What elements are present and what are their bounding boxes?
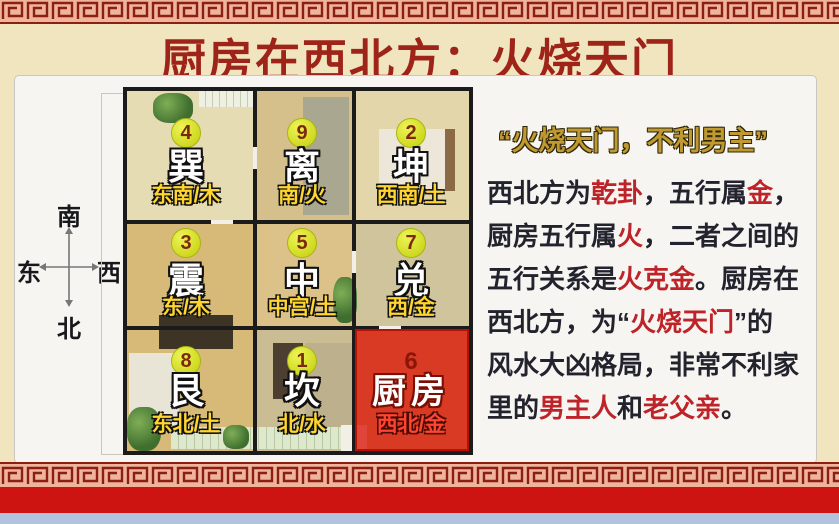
balcony-top (199, 91, 257, 107)
bagua-direction-4: 东南/木 (152, 185, 221, 206)
bagua-trigram-8: 艮 (168, 373, 204, 409)
sidebar-heading: “火烧天门，不利男主” (498, 119, 818, 158)
cabinet (159, 315, 233, 349)
plant-icon (223, 425, 249, 449)
body-text: ， (773, 178, 799, 208)
bagua-trigram-7: 兑 (393, 263, 429, 299)
bagua-trigram-4: 巽 (168, 149, 204, 185)
wall (127, 220, 469, 224)
bagua-direction-7: 西/金 (387, 297, 435, 318)
body-text: 西北方为 (487, 178, 591, 208)
paragraph-line-4: 西北方，为“火烧天门”的 (487, 301, 817, 344)
emphasis-text: 男主人 (539, 393, 617, 423)
compass-north-label: 北 (57, 309, 81, 344)
bagua-direction-8: 东北/土 (152, 414, 221, 435)
bagua-trigram-9: 离 (284, 149, 320, 185)
bagua-direction-9: 南/火 (278, 185, 326, 206)
door-opening (253, 147, 257, 169)
body-text: 五行关系是 (487, 264, 617, 294)
emphasis-text: 乾卦 (591, 178, 643, 208)
sidebar-paragraph: 西北方为乾卦，五行属金，厨房五行属火，二者之间的五行关系是火克金。厨房在西北方，… (487, 172, 817, 430)
bagua-number-3: 3 (171, 228, 201, 258)
bagua-number-4: 4 (171, 118, 201, 148)
bagua-number-2: 2 (396, 118, 426, 148)
body-text: ”的 (734, 307, 773, 337)
body-text: 里的 (487, 393, 539, 423)
body-text: 和 (617, 393, 643, 423)
bagua-direction-6: 西北/金 (377, 414, 446, 435)
bagua-trigram-3: 震 (168, 263, 204, 299)
body-text: 厨房五行属 (487, 221, 617, 251)
meander-pattern-bottom (0, 464, 839, 487)
compass-south-label: 南 (57, 197, 81, 232)
paragraph-line-6: 里的男主人和老父亲。 (487, 387, 817, 430)
body-text: ，五行属 (643, 178, 747, 208)
emphasis-text: 火烧天门 (630, 307, 734, 337)
bagua-number-5: 5 (287, 228, 317, 258)
bagua-trigram-1: 坎 (284, 373, 320, 409)
paragraph-line-2: 厨房五行属火，二者之间的 (487, 215, 817, 258)
red-band (0, 487, 839, 513)
bagua-number-6: 6 (404, 348, 417, 376)
body-text: 。 (721, 393, 747, 423)
body-text: 西北方，为“ (487, 307, 630, 337)
body-text: 风水大凶格局，非常不利家 (487, 350, 799, 380)
bagua-direction-3: 东/木 (162, 297, 210, 318)
bagua-trigram-5: 中 (284, 263, 320, 299)
bottom-meander-border (0, 462, 839, 489)
bagua-direction-5: 中宫/土 (268, 297, 337, 318)
top-meander-border (0, 0, 839, 24)
body-text: ，二者之间的 (643, 221, 799, 251)
paragraph-line-1: 西北方为乾卦，五行属金， (487, 172, 817, 215)
kitchen-label: 厨房 (372, 375, 450, 409)
bottom-strip (0, 513, 839, 524)
paragraph-line-3: 五行关系是火克金。厨房在 (487, 258, 817, 301)
emphasis-text: 火克金 (617, 264, 695, 294)
emphasis-text: 火 (617, 221, 643, 251)
bagua-direction-1: 北/水 (278, 414, 326, 435)
wall (253, 91, 257, 451)
bagua-number-9: 9 (287, 118, 317, 148)
bagua-number-7: 7 (396, 228, 426, 258)
door-opening (211, 220, 233, 224)
content-panel: 南 北 东 西 (14, 75, 817, 464)
meander-pattern-top (0, 0, 839, 22)
paragraph-line-5: 风水大凶格局，非常不利家 (487, 344, 817, 387)
compass-east-label: 东 (17, 253, 41, 288)
bagua-trigram-2: 坤 (393, 149, 429, 185)
fengshui-poster: 厨房在西北方：火烧天门 南 北 东 西 (0, 0, 839, 524)
emphasis-text: 金 (747, 178, 773, 208)
bagua-direction-2: 西南/土 (377, 185, 446, 206)
door-opening (352, 251, 356, 273)
body-text: 。厨房在 (695, 264, 799, 294)
emphasis-text: 老父亲 (643, 393, 721, 423)
floorplan: 4巽东南/木9离南/火2坤西南/土3震东/木5中中宫/土7兑西/金8艮东北/土1… (123, 87, 473, 455)
